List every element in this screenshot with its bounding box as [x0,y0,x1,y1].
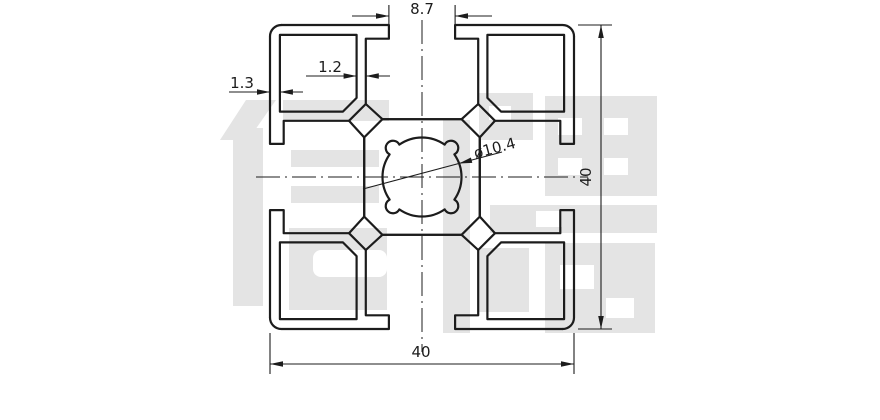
dim-label-inner-wall: 1.2 [318,58,342,76]
arrowhead [376,13,389,19]
dimension-overall-width: 40 [270,333,574,374]
arrowhead [344,73,357,79]
arrowhead [455,13,468,19]
dim-label-slot-opening: 8.7 [410,0,434,18]
arrowhead [561,361,574,367]
arrowhead [257,89,270,95]
arrowhead [598,25,604,38]
dim-label-overall-width: 40 [411,343,430,361]
dim-label-center-hole: ø10.4 [472,134,518,162]
arrowhead [366,73,379,79]
arrowhead [270,361,283,367]
dimension-inner-wall: 1.2 [306,58,390,79]
extrusion-profile-drawing: 8.7 1.3 1.2 ø10.4 [0,0,880,420]
dim-label-overall-height: 40 [577,167,595,186]
dimension-outer-wall: 1.3 [229,74,303,95]
dim-label-outer-wall: 1.3 [230,74,254,92]
arrowhead [280,89,293,95]
technical-drawing-canvas: 8.7 1.3 1.2 ø10.4 [0,0,880,420]
